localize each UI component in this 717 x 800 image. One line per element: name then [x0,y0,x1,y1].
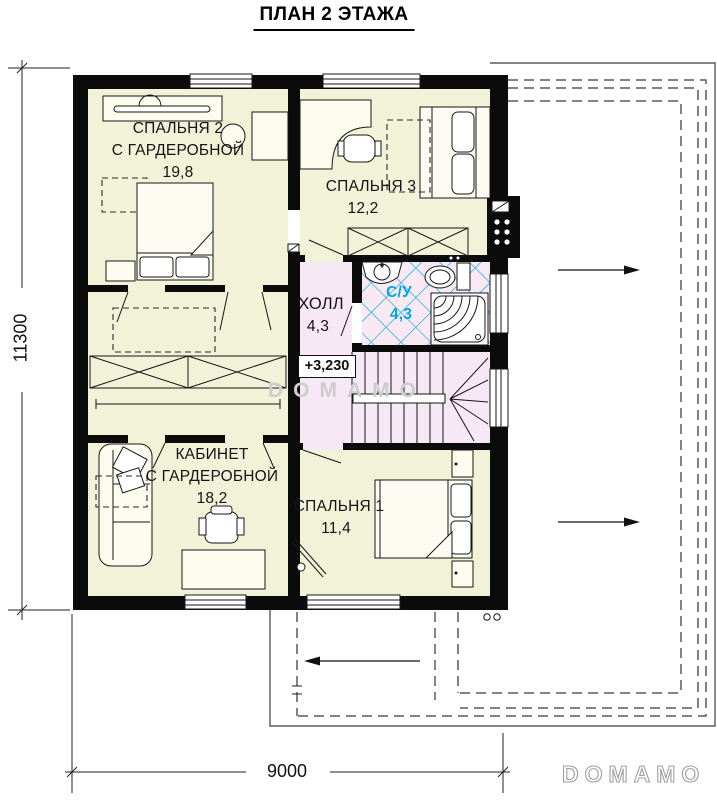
room-bedroom2-area: 19,8 [163,164,194,182]
room-bedroom2-name: СПАЛЬНЯ 2 [133,120,223,138]
floor-plan-canvas: ПЛАН 2 ЭТАЖА СПАЛЬНЯ 2 С ГАРДЕРОБНОЙ 19,… [0,0,717,800]
brand-logo: DOMAMO [562,761,705,788]
elevation-mark: +3,230 [298,355,356,378]
room-office-suffix: С ГАРДЕРОБНОЙ [146,468,279,486]
room-bedroom3-name: СПАЛЬНЯ 3 [326,178,416,196]
dimension-horizontal: 9000 [267,761,307,782]
room-office-name: КАБИНЕТ [175,446,248,464]
room-bathroom-name: С/У [386,284,412,302]
room-bedroom1-name: СПАЛЬНЯ 1 [294,498,384,516]
room-office-area: 18,2 [197,490,228,508]
room-hall-area: 4,3 [307,318,329,336]
dimension-vertical: 11300 [11,310,32,367]
room-bedroom1-area: 11,4 [321,520,351,538]
chimney-vent-block [487,196,520,258]
drain-circles [484,614,500,620]
room-bathroom-area: 4,3 [390,306,412,324]
watermark: DOMAMO [268,379,426,403]
room-bedroom3-area: 12,2 [348,200,379,218]
room-bedroom2-suffix: С ГАРДЕРОБНОЙ [112,142,245,160]
plan-title: ПЛАН 2 ЭТАЖА [254,4,415,31]
room-hall-name: ХОЛЛ [298,295,344,314]
